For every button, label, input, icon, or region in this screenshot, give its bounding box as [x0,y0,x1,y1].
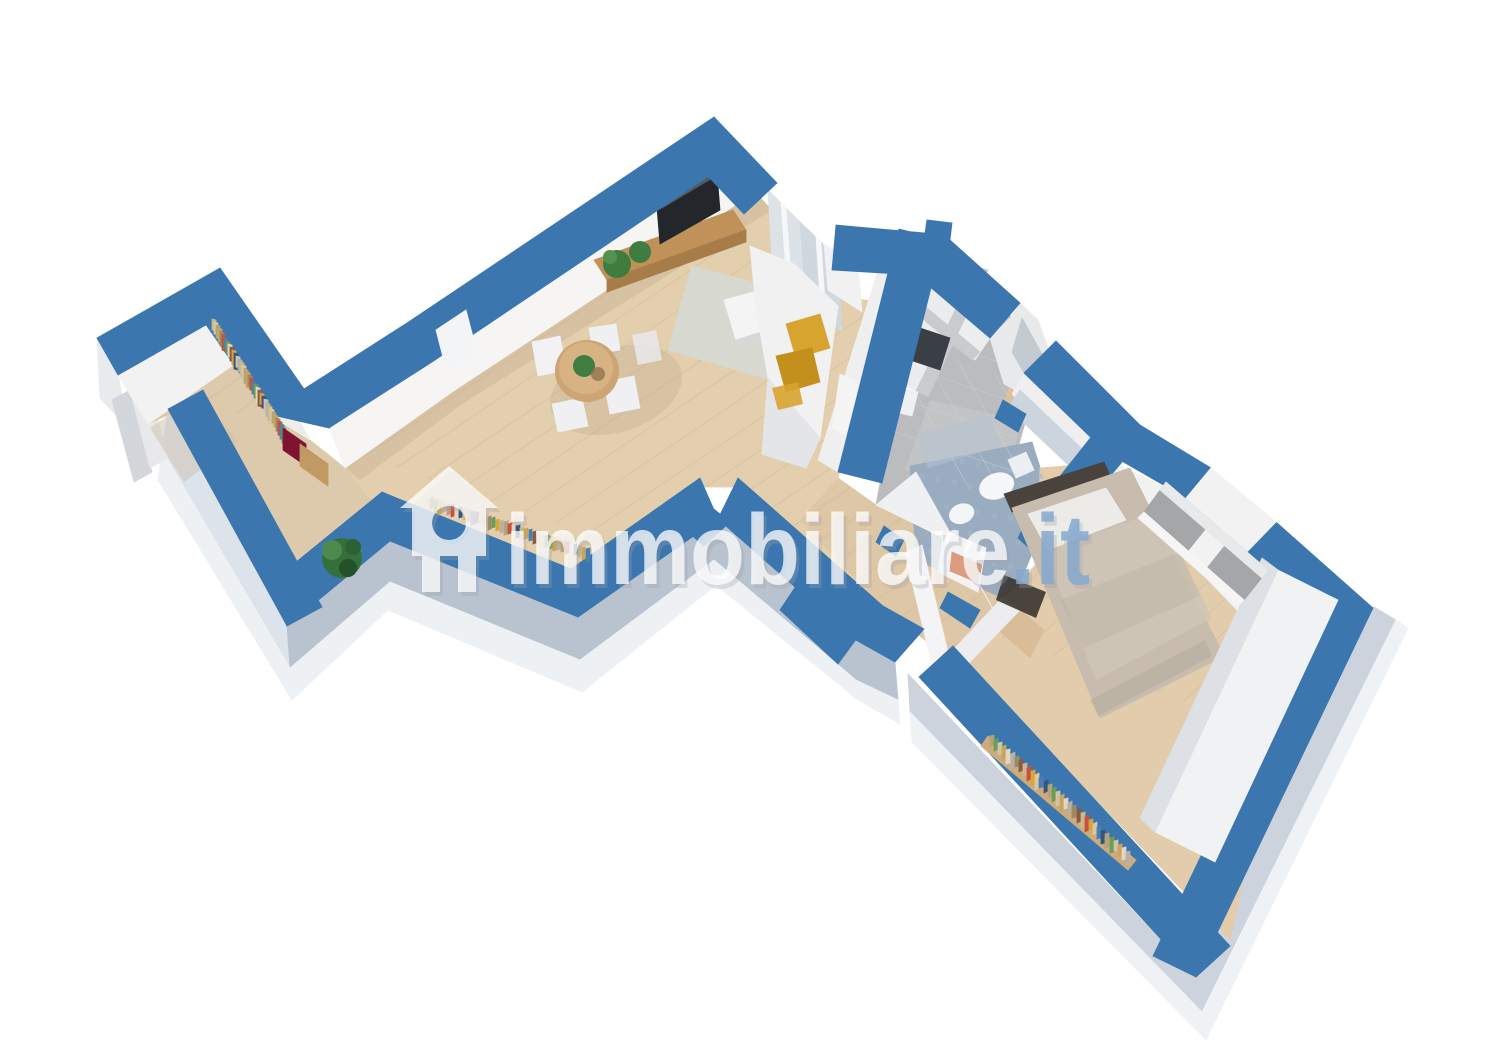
svg-text:immobiliare.it: immobiliare.it [505,495,1090,606]
